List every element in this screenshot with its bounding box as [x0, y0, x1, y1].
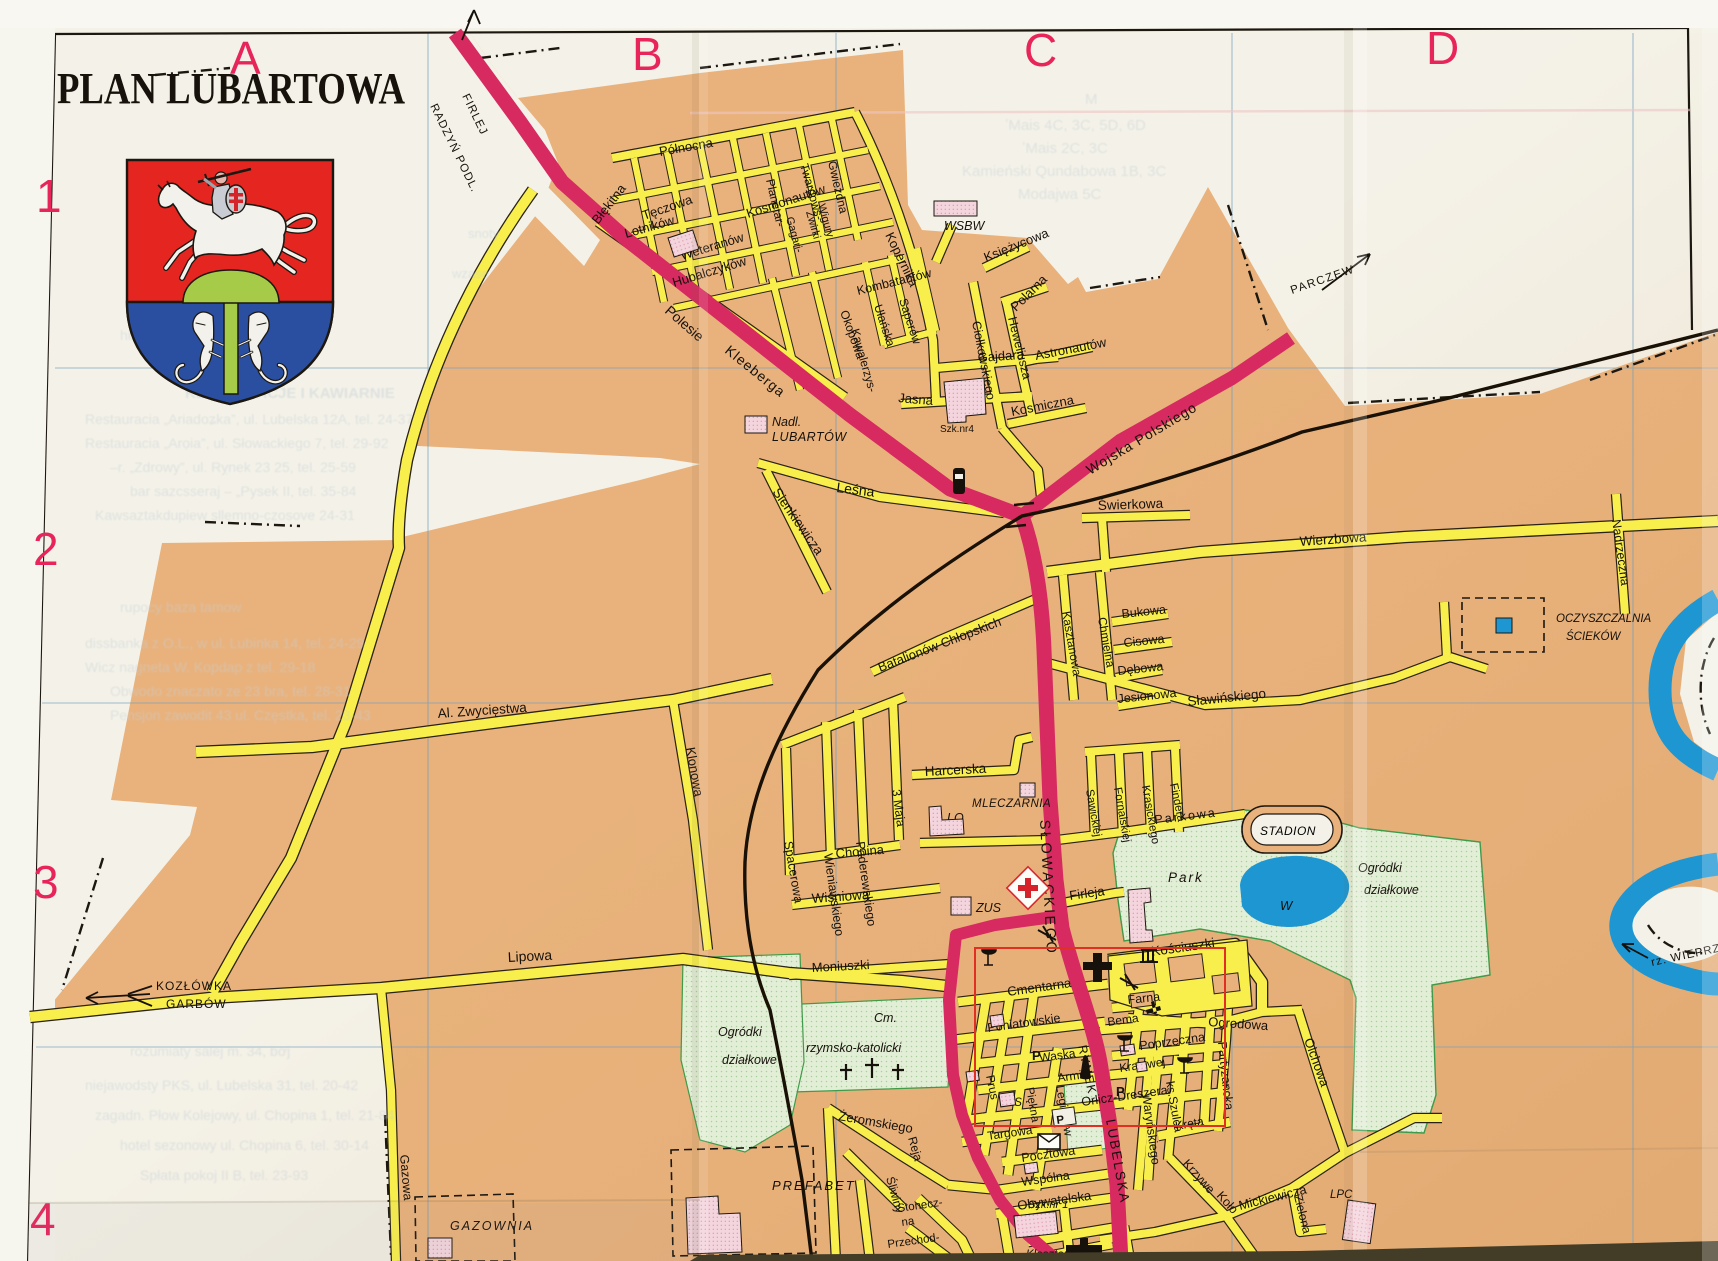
svg-text:2: 2: [33, 523, 59, 575]
svg-text:rzymsko-katolicki: rzymsko-katolicki: [806, 1041, 902, 1055]
svg-text:Moniuszki: Moniuszki: [811, 957, 870, 975]
svg-text:M: M: [1085, 91, 1098, 108]
svg-text:OCZYSZCZALNIA: OCZYSZCZALNIA: [1556, 613, 1652, 625]
svg-text:Pensjon zawodit 43 ul. Częstka: Pensjon zawodit 43 ul. Częstka, tel. 23-…: [110, 707, 371, 723]
svg-text:ʼMais 2C, 3C: ʼMais 2C, 3C: [1022, 140, 1108, 157]
svg-text:D: D: [1426, 22, 1459, 74]
svg-text:Modajwa 5C: Modajwa 5C: [1018, 186, 1102, 203]
svg-text:hotel sezonowy ul. Chopina 6,: hotel sezonowy ul. Chopina 6, tel. 30-14: [120, 1137, 369, 1153]
svg-text:Spłata pokoj II B, tel. 23-93: Spłata pokoj II B, tel. 23-93: [140, 1167, 308, 1183]
svg-text:Kamieński Qundabowa 1B, 3C: Kamieński Qundabowa 1B, 3C: [962, 163, 1166, 180]
svg-text:Park: Park: [1168, 870, 1204, 885]
svg-text:Szk.nr 1: Szk.nr 1: [1028, 1199, 1068, 1211]
svg-text:rupocy baza tamow: rupocy baza tamow: [120, 599, 242, 615]
svg-text:zagadn. Płow Kolejowy, ul. Cho: zagadn. Płow Kolejowy, ul. Chopina 1, te…: [95, 1107, 395, 1123]
svg-text:snoty: snoty: [468, 226, 500, 241]
svg-text:rozumiaty salej m. 34, bơj: rozumiaty salej m. 34, bơj: [130, 1043, 290, 1059]
svg-text:C: C: [1024, 24, 1057, 76]
svg-text:Świerkowa: Świerkowa: [1098, 496, 1164, 513]
svg-text:Restauracia „Ariadoʑka”, ul. L: Restauracia „Ariadoʑka”, ul. Lubelska 12…: [85, 411, 413, 427]
svg-text:Kawsaztakdupiew sllemno-czosov: Kawsaztakdupiew sllemno-czosove 24-31: [95, 507, 355, 523]
svg-text:niejawodsty PKS, ul. Lubelska: niejawodsty PKS, ul. Lubelska 31, tel. 2…: [85, 1077, 358, 1093]
svg-text:ZUS: ZUS: [975, 901, 1002, 915]
svg-text:WSBW: WSBW: [944, 219, 985, 233]
svg-text:Jasna: Jasna: [898, 390, 935, 408]
svg-text:P: P: [1116, 1084, 1125, 1099]
svg-text:dissbanka z O.L., w ul. Lubink: dissbanka z O.L., w ul. Lubinka 14, tel.…: [85, 635, 365, 651]
svg-text:KOZŁÓWKA: KOZŁÓWKA: [156, 978, 232, 993]
svg-text:P: P: [1032, 1048, 1041, 1063]
svg-text:–r. „Zdrowy”, ul. Rỵnek 23 25,: –r. „Zdrowy”, ul. Rỵnek 23 25, tel. 25-5…: [110, 459, 356, 475]
svg-text:LUBARTÓW: LUBARTÓW: [772, 429, 847, 444]
svg-text:ʼMais 4C, 3C, 5D, 6D: ʼMais 4C, 3C, 5D, 6D: [1005, 117, 1146, 134]
svg-text:MLECZARNIA: MLECZARNIA: [972, 798, 1051, 810]
svg-text:W: W: [1280, 898, 1294, 913]
svg-text:działkowe: działkowe: [1364, 883, 1419, 897]
svg-text:wzase: wzase: [451, 266, 489, 281]
svg-text:Szk.nr4: Szk.nr4: [940, 424, 974, 435]
svg-text:Restauracia „Arọia”, ul. Słowa: Restauracia „Arọia”, ul. Słowackiego 7, …: [85, 435, 389, 451]
svg-text:Nadl.: Nadl.: [772, 415, 801, 429]
svg-text:B: B: [632, 28, 663, 80]
svg-text:Cm.: Cm.: [874, 1011, 897, 1025]
svg-text:GARBÓW: GARBÓW: [166, 996, 227, 1011]
svg-text:bar sazcsseraj – „Pysek II, te: bar sazcsseraj – „Pysek II, tel. 35-84: [130, 483, 357, 499]
svg-text:1: 1: [36, 170, 62, 222]
svg-text:Obwodo znaczato ze 23 bra, tel: Obwodo znaczato ze 23 bra, tel. 28-31: [110, 683, 351, 699]
svg-text:działkowe: działkowe: [722, 1053, 777, 1067]
svg-text:na: na: [901, 1215, 916, 1229]
svg-text:Lipowa: Lipowa: [507, 947, 552, 965]
svg-text:PLAN LUBARTOWA: PLAN LUBARTOWA: [57, 64, 405, 113]
svg-text:Wicz nagneta W. Kopdap z tel.: Wicz nagneta W. Kopdap z tel. 29-18: [85, 659, 316, 675]
svg-text:STADION: STADION: [1260, 824, 1316, 838]
svg-text:Ogródki: Ogródki: [718, 1025, 763, 1039]
svg-text:ŚCIEKÓW: ŚCIEKÓW: [1566, 630, 1621, 643]
svg-text:3: 3: [33, 856, 59, 908]
